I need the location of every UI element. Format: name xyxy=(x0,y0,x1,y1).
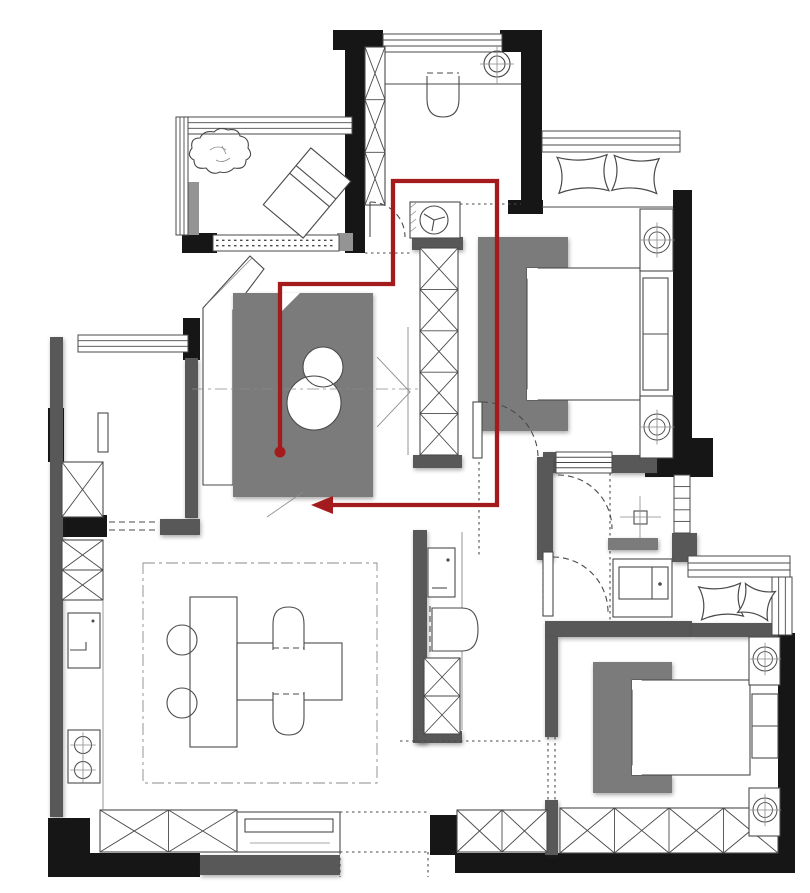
pillow-icon xyxy=(612,155,659,193)
wall xyxy=(455,853,795,873)
door-track xyxy=(556,452,612,473)
basin-icon xyxy=(428,548,455,597)
storage xyxy=(424,658,460,734)
sliding-door xyxy=(213,235,339,251)
dining-table xyxy=(190,597,237,747)
window xyxy=(383,34,502,52)
wall xyxy=(345,32,365,253)
sliding-door xyxy=(213,235,339,251)
bed-mattress xyxy=(527,268,640,400)
louver-window xyxy=(674,475,690,533)
bay-window xyxy=(688,556,790,577)
wall xyxy=(200,855,340,875)
bay-window xyxy=(772,577,792,635)
wall xyxy=(545,637,558,737)
pillow-icon xyxy=(699,583,744,620)
wall xyxy=(182,233,217,253)
bay-window xyxy=(542,131,680,152)
window xyxy=(176,117,188,235)
faucet-dot xyxy=(658,582,662,586)
floor-plan-canvas xyxy=(0,0,810,893)
wall xyxy=(430,815,457,855)
wall xyxy=(160,519,200,535)
wall xyxy=(545,621,692,637)
bay-window xyxy=(688,556,790,577)
door-leaf xyxy=(543,552,553,616)
window xyxy=(78,335,188,352)
wall xyxy=(521,40,542,212)
stove-icon xyxy=(68,730,100,783)
wall xyxy=(537,457,553,560)
wall xyxy=(88,853,200,877)
window xyxy=(383,34,502,52)
louver-window xyxy=(674,475,690,533)
pillow-icon xyxy=(557,155,609,194)
cabinet xyxy=(62,540,103,600)
wall xyxy=(508,200,543,214)
faucet-dot xyxy=(92,620,95,623)
bed-mattress xyxy=(632,680,750,775)
route-start-dot xyxy=(275,447,286,458)
sink-icon xyxy=(68,613,100,668)
window xyxy=(78,335,188,352)
wall xyxy=(692,623,778,637)
window xyxy=(176,117,188,235)
pillow-icon xyxy=(699,583,744,620)
faucet-dot xyxy=(446,558,449,561)
pillow-icon xyxy=(557,155,609,194)
bay-window xyxy=(772,577,792,635)
bay-window xyxy=(542,131,680,152)
toilet-icon xyxy=(432,608,478,651)
wall xyxy=(413,455,462,468)
wall xyxy=(185,358,198,518)
shelf xyxy=(608,538,658,550)
pillow-icon xyxy=(612,155,659,193)
window xyxy=(176,117,352,134)
wardrobe xyxy=(560,808,778,853)
tv-cabinet xyxy=(100,810,237,852)
chair xyxy=(273,692,304,735)
wall xyxy=(48,818,90,877)
wall xyxy=(50,337,63,817)
wall xyxy=(673,190,692,466)
vanity-counter xyxy=(613,559,672,617)
cabinet xyxy=(62,462,103,517)
door-leaf xyxy=(473,402,482,458)
hall-cabinet xyxy=(420,248,458,455)
cabinet xyxy=(457,810,547,852)
tall-cabinet xyxy=(365,47,385,205)
chair xyxy=(273,607,304,650)
window xyxy=(176,117,352,134)
floor-plan xyxy=(0,0,810,893)
